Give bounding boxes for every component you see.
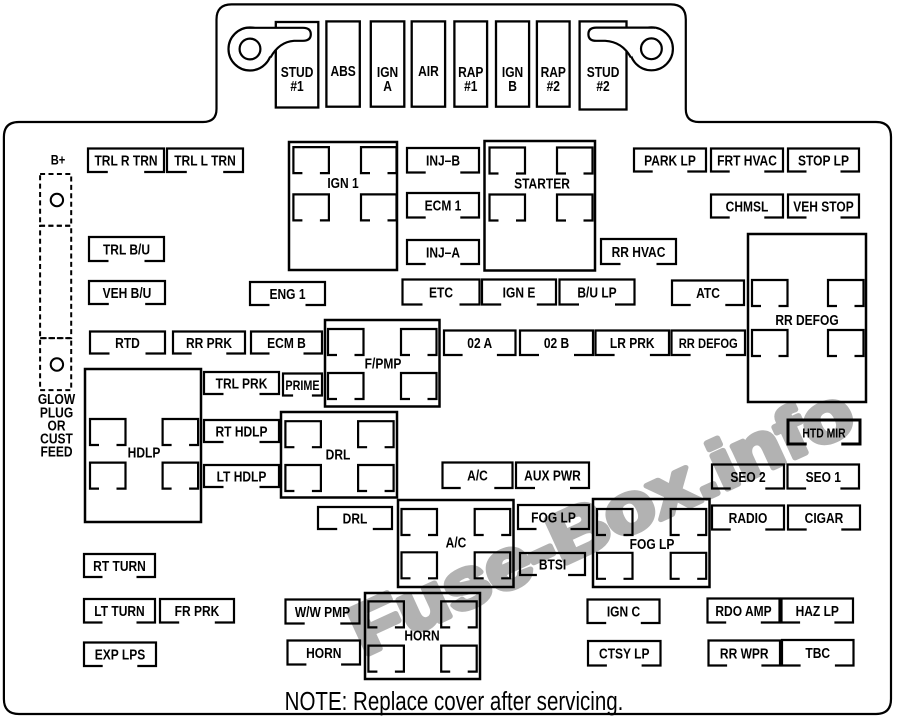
svg-text:RR HVAC: RR HVAC bbox=[612, 244, 666, 261]
svg-text:TRL B/U: TRL B/U bbox=[103, 241, 150, 258]
svg-text:AUX PWR: AUX PWR bbox=[524, 467, 581, 484]
svg-text:RR PRK: RR PRK bbox=[186, 335, 232, 352]
svg-text:RTD: RTD bbox=[115, 335, 140, 352]
svg-text:TRL PRK: TRL PRK bbox=[216, 375, 268, 392]
svg-text:HORN: HORN bbox=[306, 645, 341, 662]
svg-text:ABS: ABS bbox=[330, 63, 355, 80]
svg-text:INJ–A: INJ–A bbox=[426, 244, 460, 261]
svg-text:FRT HVAC: FRT HVAC bbox=[717, 152, 777, 169]
svg-text:STOP LP: STOP LP bbox=[798, 152, 849, 169]
svg-text:#1: #1 bbox=[290, 78, 304, 95]
svg-text:PRIME: PRIME bbox=[285, 378, 319, 393]
svg-text:02 B: 02 B bbox=[544, 335, 570, 352]
svg-text:DRL: DRL bbox=[343, 510, 368, 527]
svg-text:VEH STOP: VEH STOP bbox=[793, 198, 853, 215]
svg-text:ATC: ATC bbox=[696, 285, 720, 302]
svg-text:RT HDLP: RT HDLP bbox=[216, 423, 268, 440]
svg-text:LT HDLP: LT HDLP bbox=[217, 468, 267, 485]
svg-text:IGN 1: IGN 1 bbox=[327, 175, 359, 192]
svg-text:TRL L TRN: TRL L TRN bbox=[174, 152, 236, 169]
svg-text:RADIO: RADIO bbox=[729, 510, 768, 527]
svg-text:BTSI: BTSI bbox=[539, 556, 566, 573]
svg-text:FOG LP: FOG LP bbox=[630, 536, 675, 553]
svg-text:CHMSL: CHMSL bbox=[726, 198, 769, 215]
svg-text:IGN E: IGN E bbox=[503, 284, 536, 301]
svg-text:FR PRK: FR PRK bbox=[175, 603, 220, 620]
svg-text:A/C: A/C bbox=[467, 467, 488, 484]
svg-text:ECM 1: ECM 1 bbox=[425, 197, 462, 214]
svg-text:B+: B+ bbox=[51, 152, 66, 167]
svg-text:IGN C: IGN C bbox=[607, 603, 640, 620]
svg-text:ENG 1: ENG 1 bbox=[269, 286, 305, 303]
svg-text:CIGAR: CIGAR bbox=[805, 510, 844, 527]
svg-text:INJ–B: INJ–B bbox=[426, 152, 460, 169]
svg-text:RDO AMP: RDO AMP bbox=[715, 603, 771, 620]
svg-text:CTSY LP: CTSY LP bbox=[599, 645, 649, 662]
svg-text:FOG LP: FOG LP bbox=[531, 509, 576, 526]
svg-text:RR DEFOG: RR DEFOG bbox=[679, 336, 738, 351]
svg-text:LT TURN: LT TURN bbox=[94, 603, 144, 620]
svg-text:TRL R TRN: TRL R TRN bbox=[94, 152, 157, 169]
svg-text:B/U LP: B/U LP bbox=[577, 284, 616, 301]
svg-text:W/W PMP: W/W PMP bbox=[295, 604, 350, 621]
svg-text:#2: #2 bbox=[547, 78, 561, 95]
svg-text:HTD MIR: HTD MIR bbox=[802, 426, 846, 440]
svg-text:RR WPR: RR WPR bbox=[720, 645, 769, 662]
svg-text:DRL: DRL bbox=[326, 446, 351, 463]
svg-text:#1: #1 bbox=[464, 78, 478, 95]
svg-text:F/PMP: F/PMP bbox=[365, 355, 402, 372]
svg-text:HORN: HORN bbox=[404, 627, 439, 644]
svg-text:HDLP: HDLP bbox=[128, 444, 161, 461]
svg-text:NOTE: Replace cover after serv: NOTE: Replace cover after servicing. bbox=[285, 687, 624, 716]
svg-text:LR PRK: LR PRK bbox=[610, 335, 655, 352]
svg-text:SEO 2: SEO 2 bbox=[730, 469, 766, 486]
svg-text:HAZ LP: HAZ LP bbox=[796, 603, 839, 620]
svg-text:A/C: A/C bbox=[446, 534, 467, 551]
svg-text:AIR: AIR bbox=[418, 63, 439, 80]
svg-text:EXP LPS: EXP LPS bbox=[95, 646, 145, 663]
svg-text:VEH B/U: VEH B/U bbox=[103, 285, 152, 302]
svg-text:SEO 1: SEO 1 bbox=[806, 469, 842, 486]
svg-text:ECM B: ECM B bbox=[267, 335, 306, 352]
svg-text:RR DEFOG: RR DEFOG bbox=[775, 312, 838, 329]
svg-text:B: B bbox=[508, 78, 517, 95]
svg-text:RT TURN: RT TURN bbox=[93, 558, 146, 575]
svg-text:02 A: 02 A bbox=[467, 335, 492, 352]
svg-text:TBC: TBC bbox=[805, 645, 830, 662]
svg-text:STARTER: STARTER bbox=[514, 175, 570, 192]
svg-text:FEED: FEED bbox=[41, 443, 73, 460]
svg-text:A: A bbox=[383, 78, 392, 95]
svg-text:PARK LP: PARK LP bbox=[644, 152, 696, 169]
svg-text:#2: #2 bbox=[596, 78, 610, 95]
svg-text:ETC: ETC bbox=[429, 284, 453, 301]
